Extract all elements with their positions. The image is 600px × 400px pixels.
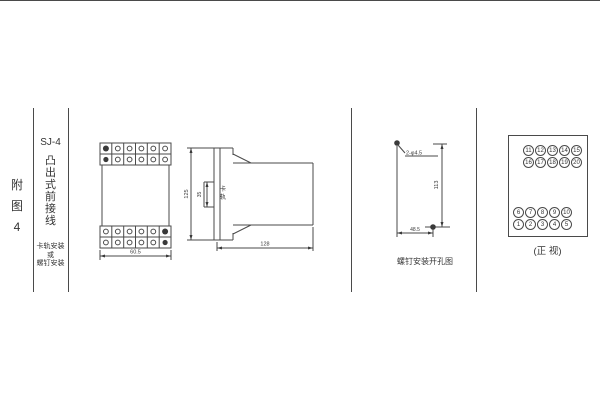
mount-note-line2: 或 [33,252,68,261]
terminal-circle: 12 [535,145,546,156]
front-view-drawing: 60.5 [95,138,180,263]
terminal-circle: 9 [549,207,560,218]
drill-hole-bottom [430,224,436,230]
terminal-circle: 11 [523,145,534,156]
terminal-circle: 3 [537,219,548,230]
terminal-circle: 18 [547,157,558,168]
model-label: SJ-4 [34,137,67,148]
terminal-row-upper-2: 16 17 18 19 20 [523,157,582,168]
drill-vertical-dim: 113 [434,181,440,190]
terminal-circle: 16 [523,157,534,168]
terminal-circle: 17 [535,157,546,168]
side-depth-dim: 128 [260,242,269,248]
side-rail-dim: 35 [197,192,203,198]
drill-hole-top [394,140,400,146]
terminal-circle: 20 [571,157,582,168]
rail-label: 卡轨 [219,186,227,202]
mount-note: 卡轨安装 或 螺钉安装 [33,243,68,269]
figure-index-label: 附图4 [10,175,24,238]
terminal-circle: 14 [559,145,570,156]
side-view-drawing: 125 35 128 [183,138,318,263]
terminal-row-upper-1: 11 12 13 14 15 [523,145,582,156]
divider-2 [68,108,69,292]
terminal-circle: 8 [537,207,548,218]
terminal-circle: 4 [549,219,560,230]
terminal-circle: 5 [561,219,572,230]
terminal-circle: 7 [525,207,536,218]
drawing-sheet: 附图4 SJ-4 凸出式前接线 卡轨安装 或 螺钉安装 [0,0,600,400]
drill-diagram-caption: 螺钉安装开孔图 [380,256,470,267]
terminal-circle: 19 [559,157,570,168]
band-bottom-rule [0,0,600,1]
terminal-view-caption: (正 视) [505,243,590,257]
terminal-circle: 10 [561,207,572,218]
terminal-circle: 15 [571,145,582,156]
terminal-row-lower-1: 6 7 8 9 10 [513,207,572,218]
divider-3 [351,108,352,292]
side-height-dim: 125 [184,189,190,198]
terminal-circle: 1 [513,219,524,230]
terminal-circle: 2 [525,219,536,230]
type-label: 凸出式前接线 [44,155,57,227]
divider-4 [476,108,477,292]
mount-note-line3: 螺钉安装 [33,260,68,269]
terminal-row-lower-2: 1 2 3 4 5 [513,219,572,230]
front-width-dim: 60.5 [130,250,141,256]
drill-horizontal-dim: 48.5 [410,227,420,233]
terminal-circle: 6 [513,207,524,218]
mount-note-line1: 卡轨安装 [33,243,68,252]
drill-diagram: 2-φ4.5 113 48.5 [380,138,470,268]
terminal-circle: 13 [547,145,558,156]
